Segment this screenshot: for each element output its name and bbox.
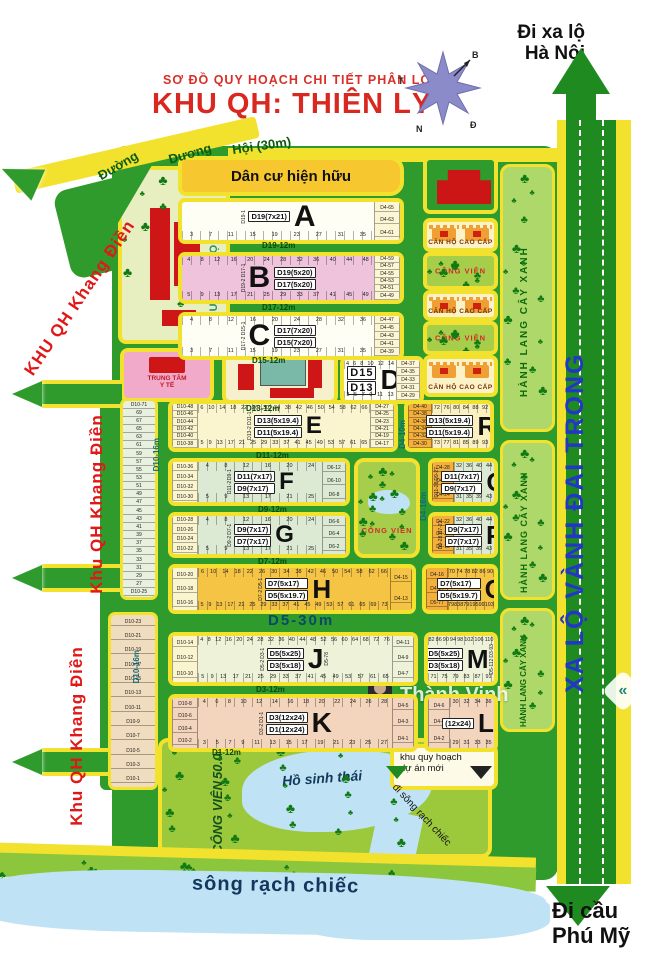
tree-icon: ♣	[537, 668, 544, 680]
lot-number: 18	[230, 405, 236, 412]
lot-cell: D10-42	[173, 426, 197, 433]
lot-number: 30	[452, 699, 458, 706]
tree-icon: ♣	[140, 189, 145, 198]
lot-number: 24	[308, 517, 314, 524]
tree-icon: ♣	[538, 688, 543, 697]
lot-number: 49	[333, 674, 339, 681]
lot-cell: D10-16	[173, 600, 197, 607]
edge-code: D9-1	[227, 469, 233, 480]
plot-block-K: D10-8D10-6D10-4D10-246810121416182022242…	[168, 694, 418, 752]
lot-cell: D10-26	[173, 527, 197, 534]
tree-icon: ♣	[234, 755, 241, 767]
dimension-chip: D3(12x24)	[266, 712, 307, 723]
lot-cell: D4-13	[391, 596, 411, 603]
lot-cell: 51	[123, 483, 155, 490]
lot-number: 27	[316, 348, 322, 355]
lot-numbers: 591317212529333741454953576165	[198, 439, 370, 448]
lot-cell: D4-51	[375, 285, 399, 292]
center-park: CÔNG VIÊN ♣♣♣♣♣♣♣♣♣♣♣♣♣♣♣♣	[354, 458, 420, 558]
lot-cell: D4-31	[397, 385, 419, 392]
lot-number: 6	[201, 569, 204, 576]
tree-icon: ♣	[511, 460, 516, 469]
lot-number: 3	[190, 348, 193, 355]
plot-block-A: D19-1D19(7x21)A3711151923273135D4-65D4-6…	[178, 198, 404, 244]
lot-number: 5	[200, 602, 203, 609]
arrow-down-black-icon	[470, 766, 492, 779]
road-label: D11-12m	[256, 451, 289, 460]
block-letter: B	[248, 261, 270, 295]
lot-number: 49	[315, 602, 321, 609]
arrow-topleft-icon	[0, 153, 45, 200]
lot-cell: 39	[123, 532, 155, 539]
dimension-chip: D3(5x18)	[267, 660, 304, 671]
lot-number: 21	[247, 292, 253, 299]
lot-cell: 47	[123, 499, 155, 506]
west-road	[42, 564, 122, 592]
existing-residential-block: Dân cư hiện hữu	[178, 156, 404, 196]
edge-codes: D7-2D5-1	[258, 578, 264, 601]
lot-cell: D4-43	[375, 333, 399, 340]
lot-number: 15	[250, 348, 256, 355]
edge-codes: D3-40	[495, 716, 498, 730]
lot-column-right: D4-15D4-13	[390, 568, 412, 610]
school-building	[150, 208, 170, 300]
lot-numbers: 591317212529333741454953576165	[198, 673, 392, 682]
tree-icon: ♣	[529, 620, 534, 629]
lot-numbers: 5913172125	[198, 545, 322, 554]
lot-number: 45	[346, 292, 352, 299]
dimension-chip: D9(7x17)	[441, 483, 482, 494]
road-label: D1-12m	[212, 748, 241, 757]
lot-number: 13	[243, 494, 249, 501]
edge-codes: D9-2D7-1	[227, 524, 233, 547]
lot-cell: D4-37	[397, 361, 419, 368]
lot-number: 7	[209, 348, 212, 355]
lot-cell: D6-10	[323, 478, 345, 485]
road-label: D3-12m	[256, 685, 285, 694]
new-project-note: khu quy hoạch	[400, 752, 488, 763]
lot-number: 57	[339, 440, 345, 447]
tree-icon: ♣	[475, 276, 480, 285]
lot-number: 54	[329, 405, 335, 412]
block-letter: O	[485, 574, 498, 605]
edge-code: D17-1	[241, 264, 247, 278]
lot-number: 71	[430, 674, 436, 681]
complex-building	[270, 388, 314, 398]
tree-icon: ♣	[538, 337, 543, 346]
lot-number: 14	[272, 699, 278, 706]
dimension-chip: D5(5x25)	[267, 648, 304, 659]
lot-cell: D10-32	[173, 484, 197, 491]
tree-icon: ♣	[175, 767, 184, 783]
lot-column-right: D4-27D4-25D4-23D4-21D4-19D4-17	[370, 404, 394, 448]
lot-number: 58	[340, 405, 346, 412]
lot-number: 4	[187, 257, 190, 264]
lot-number: 25	[308, 546, 314, 553]
plot-main: 32364044D9-28D7-27D9(7x17)D7(7x17)PD9-46…	[454, 516, 494, 554]
tree-icon: ♣	[537, 293, 544, 305]
lot-number: 29	[260, 602, 266, 609]
compass-south-letter: N	[416, 124, 423, 134]
lot-cell: D10-46	[173, 411, 197, 418]
lot-number: 25	[258, 674, 264, 681]
lot-cell: 55	[123, 467, 155, 474]
lot-cell: D10-28	[173, 517, 197, 524]
tree-icon: ♣	[529, 188, 534, 197]
lot-cell: D4-15	[391, 575, 411, 582]
lot-number: 62	[350, 405, 356, 412]
lot-cell: D6-6	[323, 519, 345, 526]
lot-numbers: 5913172125	[198, 493, 322, 502]
plot-main: D19-1D19(7x21)A3711151923273135	[182, 202, 374, 240]
lot-number: 8	[209, 317, 212, 324]
lot-number: 7	[229, 740, 232, 747]
lot-cell: D10-71	[123, 402, 155, 409]
lot-cell: D10-1	[111, 776, 155, 783]
lot-cell: D10-25	[123, 589, 155, 596]
apartment-label: CĂN HỘ CAO CẤP	[427, 239, 494, 246]
edge-code: D3-40	[495, 716, 498, 730]
lot-number: 33	[283, 674, 289, 681]
block-letter: R	[477, 411, 494, 442]
lot-numbers: 31353943	[454, 545, 494, 554]
lot-column-right: D4-5D4-3D4-1	[392, 698, 414, 748]
lot-number: 23	[294, 348, 300, 355]
left-lot-strip-lower: D10-23D10-21D10-19D10-17D10-15D10-13D10-…	[108, 612, 158, 790]
lot-number: 37	[295, 674, 301, 681]
lot-number: 28	[381, 699, 387, 706]
green-corridor-label: HÀNH LANG CÂY XANH	[519, 615, 528, 727]
edge-codes: D17-2D15-1	[241, 322, 247, 350]
tree-icon: ♣	[529, 700, 536, 712]
tree-icon: ♣	[475, 342, 480, 351]
dimension-chip: D7(5x17)	[437, 578, 481, 589]
lot-number: 32	[338, 317, 344, 324]
lot-number: 36	[360, 317, 366, 324]
dimension-chip: D15(7x20)	[274, 337, 315, 348]
apartment-label: CĂN HỘ CAO CẤP	[427, 384, 494, 391]
lot-number: 91	[485, 674, 491, 681]
lot-cell: D10-11	[111, 705, 155, 712]
park-label: CÔNG VIÊN	[427, 267, 494, 276]
arrow-up-hanoi-icon	[552, 48, 610, 94]
lot-numbers: 30323436	[450, 698, 494, 707]
lot-cell: D6-12	[323, 465, 345, 472]
lot-number: 49	[317, 440, 323, 447]
tree-icon: ♣	[227, 811, 232, 820]
edge-code: D1-1	[259, 712, 265, 723]
lot-number: 18	[303, 699, 309, 706]
existing-residential-label: Dân cư hiện hữu	[231, 168, 351, 185]
facility-apt: CĂN HỘ CAO CẤP	[423, 355, 498, 397]
lot-cell: 57	[123, 459, 155, 466]
lot-number: 9	[241, 740, 244, 747]
block-letter: K	[312, 707, 332, 739]
lot-number: 25	[365, 740, 371, 747]
lot-cell: 61	[123, 442, 155, 449]
lot-cell: D10-6	[173, 713, 197, 720]
lot-number: 13	[214, 292, 220, 299]
park-label: CÔNG VIÊN	[427, 334, 494, 343]
edge-code: D11-1	[247, 412, 253, 425]
lot-cell: D10-13	[111, 690, 155, 697]
lot-cell: D4-59	[375, 256, 399, 263]
lot-number: 89	[472, 440, 478, 447]
lot-cell: D4-23	[371, 419, 393, 426]
lot-number: 13	[243, 546, 249, 553]
lot-number: 21	[333, 740, 339, 747]
center-park-label: CÔNG VIÊN	[358, 526, 416, 535]
medical-label: TRUNG TÂMY TẾ	[124, 375, 210, 389]
tree-icon: ♣	[503, 267, 508, 276]
lot-number: 54	[344, 569, 350, 576]
lot-number: 18	[235, 569, 241, 576]
lot-numbers: 737781858993	[432, 439, 490, 448]
lot-column-right: D4-47D4-45D4-43D4-41D4-39	[374, 316, 400, 356]
lot-number: 58	[356, 569, 362, 576]
lot-number: 4	[190, 317, 193, 324]
lot-cell: D4-27	[371, 404, 393, 411]
road-label: D7-12m	[258, 557, 287, 566]
lot-cell: D4-19	[371, 433, 393, 440]
edge-code: D15-2	[340, 381, 346, 395]
block-letter: M	[467, 644, 489, 675]
tree-icon: ♣	[389, 469, 394, 478]
arrow-west-icon	[12, 749, 42, 775]
facility-apt: CĂN HỘ CAO CẤP	[423, 218, 498, 252]
dimension-chip: D19(5x20)	[274, 267, 315, 278]
lot-number: 31	[456, 546, 462, 553]
lot-cell: 49	[123, 491, 155, 498]
lot-cell: D10-38	[173, 441, 197, 448]
plot-block-O: D4-16D4-14D5-77707478828690D7(5x17)D5(5x…	[422, 564, 498, 614]
lot-numbers: 46810121416182022242628	[198, 698, 392, 707]
facility-park: CÔNG VIÊN♣♣♣♣♣♣♣♣	[423, 252, 498, 290]
lot-cell: D6-4	[323, 531, 345, 538]
lot-number: 10	[210, 569, 216, 576]
tree-icon: ♣	[503, 502, 508, 511]
plot-block-F: D10-36D10-34D10-32D10-304812162024D11-2D…	[168, 458, 350, 506]
lot-cell: D4-33	[397, 377, 419, 384]
lot-number: 4	[206, 463, 209, 470]
medical-building	[149, 357, 185, 373]
lot-number: 8	[228, 699, 231, 706]
compass-star	[406, 52, 480, 124]
lot-number: 38	[285, 405, 291, 412]
tree-icon: ♣	[538, 569, 547, 585]
dimension-chip: D11(7x17)	[234, 471, 275, 482]
block-letter: H	[312, 574, 331, 605]
ring-road-label: XA LỘ VÀNH ĐAI TRONG	[561, 318, 617, 728]
lot-number: 35	[466, 546, 472, 553]
lot-cell: D4-1	[393, 736, 413, 743]
lot-number: 7	[209, 232, 212, 239]
lot-number: 50	[318, 405, 324, 412]
apartment-label: CĂN HỘ CAO CẤP	[427, 308, 494, 315]
lot-number: 17	[265, 546, 271, 553]
river-lower	[300, 892, 550, 940]
edge-code: D7-1	[227, 524, 233, 535]
tree-icon: ♣	[368, 472, 373, 481]
lot-column-right: D4-59D4-57D4-55D4-53D4-51D4-49	[374, 256, 400, 300]
lot-number: 17	[301, 740, 307, 747]
left-lot-strip-upper: D10-716967656361595755535149474543413937…	[120, 398, 158, 600]
lot-cell: D10-34	[173, 474, 197, 481]
lot-number: 36	[485, 699, 491, 706]
lot-cell: 63	[123, 434, 155, 441]
lot-number: 13	[387, 392, 393, 399]
lot-number: 35	[485, 740, 491, 747]
lot-number: 13	[220, 674, 226, 681]
tree-icon: ♣	[504, 356, 511, 368]
lot-number: 17	[231, 292, 237, 299]
lot-number: 9	[224, 494, 227, 501]
lot-number: 103	[485, 602, 494, 609]
lot-column-right: D4-65D4-63D4-61	[374, 202, 400, 240]
dimension-chip: D7(5x17)	[265, 578, 309, 589]
edge-codes: D13-2D11-1	[247, 412, 253, 440]
lot-number: 25	[250, 440, 256, 447]
edge-code: D5-1	[258, 578, 264, 589]
lot-cell: D4-30	[409, 441, 431, 448]
lot-cell: D4-65	[375, 205, 399, 212]
plot-block-D: 468101214D15-2D13-1D15D13D35791113D4-37D…	[340, 356, 424, 404]
plot-block-C: 4812162024283236D17-2D15-1CD17(7x20)D15(…	[178, 312, 404, 360]
edge-code: D19-1	[241, 210, 247, 224]
tree-icon: ♣	[230, 830, 239, 846]
lot-number: 14	[222, 569, 228, 576]
lot-number: 31	[338, 348, 344, 355]
lot-column-left: D10-28D10-26D10-24D10-22	[172, 516, 198, 554]
plot-main: 6101418222630343842465054586266D7-2D5-1D…	[198, 568, 390, 610]
complex-building	[238, 364, 254, 390]
lot-number: 64	[352, 637, 358, 644]
lot-column-left: D10-8D10-6D10-4D10-2	[172, 698, 198, 748]
tree-icon: ♣	[169, 823, 176, 835]
lot-number: 13	[217, 440, 223, 447]
lot-number: 66	[381, 569, 387, 576]
map-subtitle: SƠ ĐỒ QUY HOẠCH CHI TIẾT PHÂN LÔ	[163, 73, 431, 87]
lot-number: 39	[476, 546, 482, 553]
lot-number: 45	[306, 440, 312, 447]
lot-number: 14	[219, 405, 225, 412]
lot-cell: 69	[123, 410, 155, 417]
road-label: D4-16m	[419, 492, 428, 521]
lot-number: 68	[363, 637, 369, 644]
lot-number: 53	[345, 674, 351, 681]
lot-number: 75	[441, 674, 447, 681]
lot-number: 19	[272, 348, 278, 355]
lot-number: 37	[283, 440, 289, 447]
lot-number: 73	[434, 440, 440, 447]
plot-block-E: D10-48D10-46D10-44D10-42D10-40D10-386101…	[168, 400, 398, 452]
lot-number: 6	[200, 405, 203, 412]
apartment-icon	[465, 365, 489, 378]
tree-icon: ♣	[511, 624, 516, 633]
tree-icon: ♣	[284, 863, 289, 872]
edge-code: D19-2	[241, 279, 247, 293]
block-letter: J	[308, 643, 324, 675]
lot-number: 65	[383, 674, 389, 681]
plot-block-H: D10-20D10-18D10-166101418222630343842465…	[168, 564, 416, 614]
road-label: D10-16m	[152, 438, 161, 471]
lot-numbers: 3579111315171921232527	[198, 739, 392, 748]
lot-number: 61	[348, 602, 354, 609]
lot-numbers: 29313335	[450, 739, 494, 748]
edge-codes: D5-78	[324, 652, 330, 666]
direction-phumy: Đi cầu Phú Mỹ	[552, 898, 630, 948]
lot-number: 20	[236, 637, 242, 644]
lot-number: 42	[296, 405, 302, 412]
green-corridor-strip: HÀNH LANG CÂY XANH ♣♣♣♣♣♣♣♣♣♣♣♣	[500, 440, 555, 600]
road-label: D17-12m	[262, 303, 295, 312]
lot-cell: D10-40	[173, 433, 197, 440]
lot-numbers: 3711151923273135	[182, 231, 374, 240]
lot-cell: D10-36	[173, 464, 197, 471]
lot-cell: D6-8	[323, 492, 345, 499]
edge-code: D7-27	[438, 521, 444, 535]
lot-number: 25	[264, 292, 270, 299]
lot-number: 11	[254, 740, 260, 747]
lot-cell: 37	[123, 540, 155, 547]
lot-number: 24	[247, 637, 253, 644]
edge-code: D13-1	[340, 366, 346, 380]
edge-code: D15-1	[241, 322, 247, 336]
lot-cell: D4-5	[393, 703, 413, 710]
edge-codes: D9-28D7-27	[438, 521, 444, 549]
lot-number: 73	[381, 602, 387, 609]
lot-number: 21	[239, 440, 245, 447]
lot-number: 23	[294, 232, 300, 239]
lot-number: 48	[363, 257, 369, 264]
lot-cell: D10-12	[173, 655, 197, 662]
lot-number: 5	[206, 546, 209, 553]
plot-main: 30323436(12x24)LD3-4029313335	[450, 698, 494, 748]
planning-map: SƠ ĐỒ QUY HOẠCH CHI TIẾT PHÂN LÔ KHU QH:…	[0, 0, 647, 960]
lot-cell: D4-45	[375, 325, 399, 332]
edge-codes: D15-2D13-1	[340, 366, 346, 394]
lot-cell: D4-9	[393, 655, 413, 662]
lot-number: 32	[463, 699, 469, 706]
lot-cell: D10-23	[111, 619, 155, 626]
lot-cell: D4-61	[375, 230, 399, 237]
edge-codes: D19-1	[241, 210, 247, 224]
edge-code: D3-2	[259, 724, 265, 735]
lot-cell: D4-29	[397, 393, 419, 400]
lot-number: 4	[200, 637, 203, 644]
plot-block-M: 8286909498102106110D5(5x25)D3(5x18)MD5-1…	[424, 632, 498, 686]
dimension-chip: D5(5x19.7)	[265, 590, 309, 601]
lot-cell: 67	[123, 418, 155, 425]
green-corridor-label: HÀNH LANG CÂY XANH	[519, 207, 530, 397]
edge-codes: D3-2D1-1	[259, 712, 265, 735]
lot-number: 57	[337, 602, 343, 609]
plot-main: 46810121416182022242628D3-2D1-1D3(12x24)…	[198, 698, 392, 748]
lot-number: 23	[349, 740, 355, 747]
edge-code: D5-112	[489, 658, 495, 674]
dimension-chip: D13(5x19.4)	[254, 415, 302, 426]
dimension-chip: D19(7x21)	[248, 211, 289, 222]
complex-building	[308, 356, 322, 388]
lot-number: 28	[316, 317, 322, 324]
road-label: D15-12m	[252, 356, 285, 365]
lot-cell: D4-49	[375, 293, 399, 300]
tree-icon: ♣	[537, 517, 544, 529]
tree-icon: ♣	[503, 656, 508, 665]
edge-code: D9-2	[227, 536, 233, 547]
lot-cell: D10-7	[111, 733, 155, 740]
tree-icon: ♣	[511, 196, 516, 205]
